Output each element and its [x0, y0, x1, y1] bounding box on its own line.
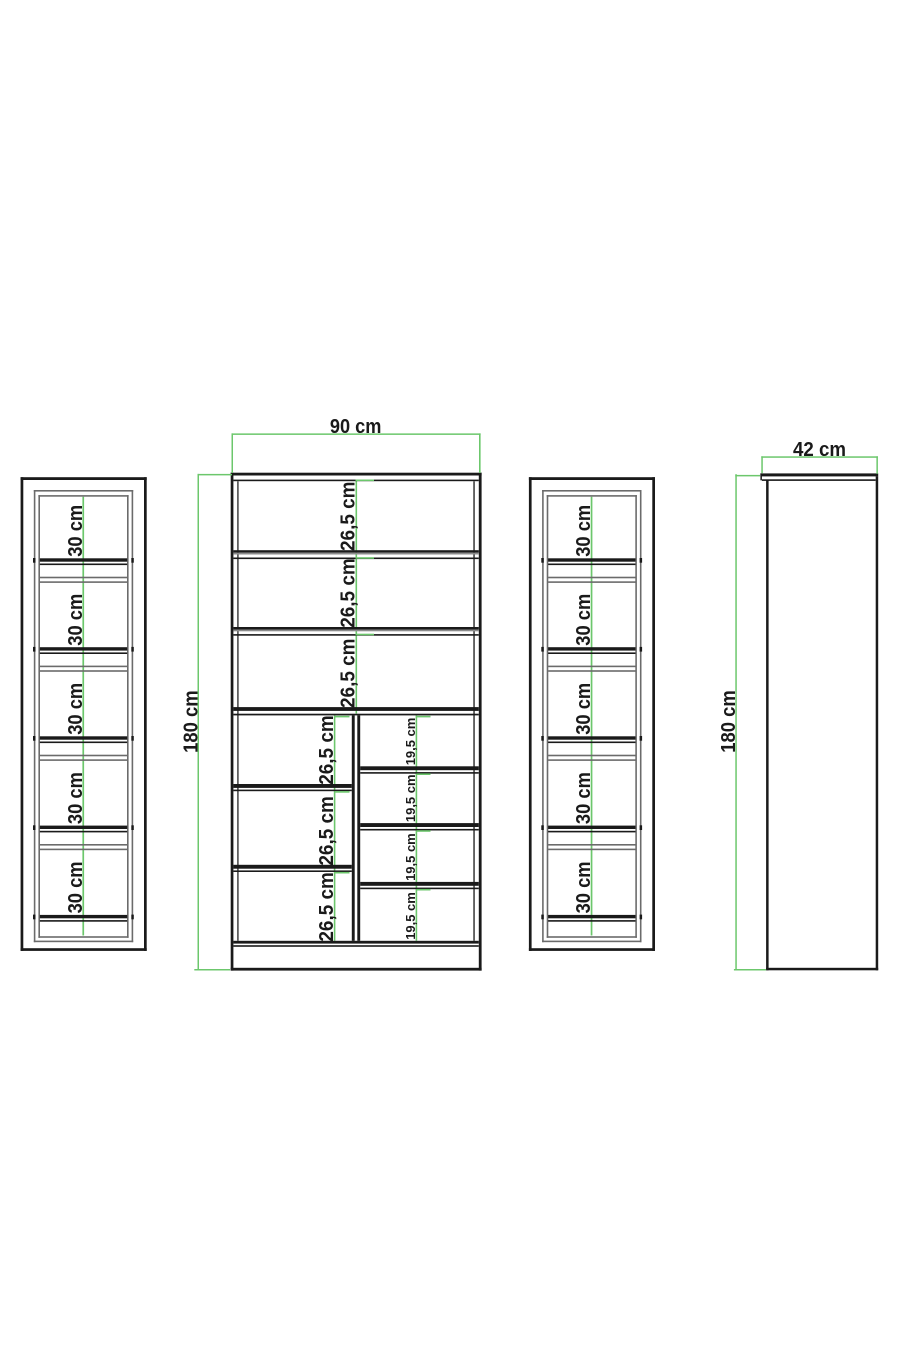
- svg-text:30 cm: 30 cm: [573, 683, 595, 735]
- svg-text:26,5 cm: 26,5 cm: [337, 639, 359, 709]
- svg-text:19,5 cm: 19,5 cm: [403, 718, 418, 766]
- svg-text:30 cm: 30 cm: [573, 594, 595, 646]
- svg-text:26,5 cm: 26,5 cm: [316, 872, 338, 942]
- svg-text:30 cm: 30 cm: [573, 505, 595, 557]
- svg-text:30 cm: 30 cm: [65, 683, 87, 735]
- svg-text:30 cm: 30 cm: [65, 861, 87, 913]
- svg-text:30 cm: 30 cm: [65, 505, 87, 557]
- svg-text:42 cm: 42 cm: [793, 439, 846, 461]
- svg-text:26,5 cm: 26,5 cm: [316, 796, 338, 866]
- svg-text:30 cm: 30 cm: [65, 594, 87, 646]
- svg-text:19,5 cm: 19,5 cm: [403, 775, 418, 823]
- svg-text:180 cm: 180 cm: [718, 690, 740, 753]
- svg-text:19,5 cm: 19,5 cm: [403, 833, 418, 881]
- svg-text:26,5 cm: 26,5 cm: [337, 482, 359, 552]
- svg-text:90 cm: 90 cm: [330, 416, 382, 438]
- svg-text:30 cm: 30 cm: [65, 772, 87, 824]
- svg-text:180 cm: 180 cm: [181, 690, 203, 753]
- svg-text:26,5 cm: 26,5 cm: [337, 558, 359, 628]
- svg-text:26,5 cm: 26,5 cm: [316, 715, 338, 785]
- svg-text:30 cm: 30 cm: [573, 861, 595, 913]
- svg-text:30 cm: 30 cm: [573, 772, 595, 824]
- svg-text:19,5 cm: 19,5 cm: [403, 892, 418, 940]
